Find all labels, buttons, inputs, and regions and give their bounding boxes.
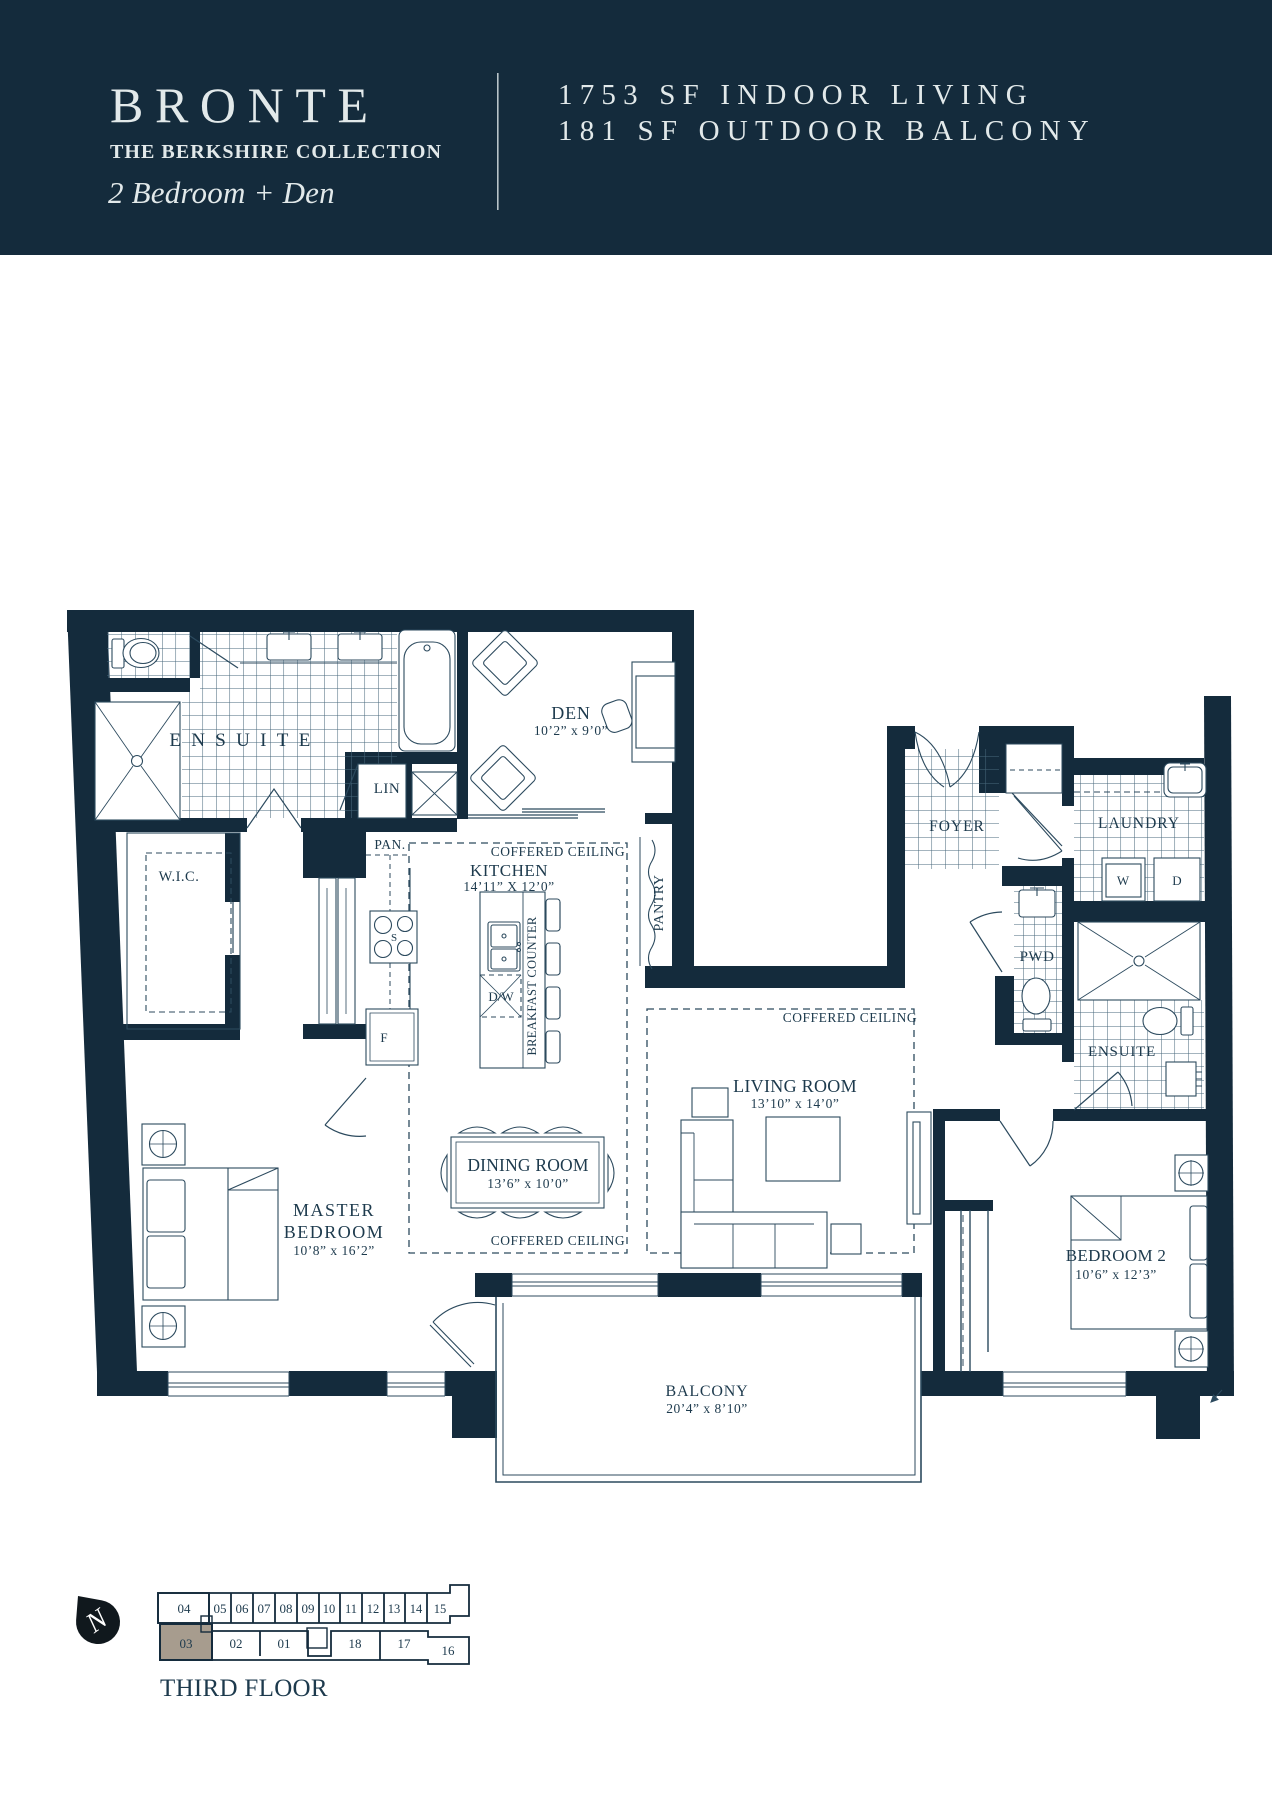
- svg-text:BALCONY: BALCONY: [666, 1383, 749, 1400]
- svg-text:16: 16: [442, 1643, 456, 1658]
- svg-text:S: S: [391, 932, 397, 944]
- svg-text:1753 SF INDOOR LIVING: 1753 SF INDOOR LIVING: [558, 79, 1034, 111]
- svg-text:D/W: D/W: [488, 989, 514, 1004]
- svg-text:10’8” x 16’2”: 10’8” x 16’2”: [293, 1243, 374, 1258]
- svg-text:BEDROOM 2: BEDROOM 2: [1066, 1246, 1166, 1265]
- svg-text:15: 15: [434, 1602, 447, 1616]
- svg-text:LIN: LIN: [374, 781, 401, 797]
- svg-text:DINING ROOM: DINING ROOM: [467, 1155, 589, 1175]
- svg-text:10: 10: [323, 1602, 336, 1616]
- svg-text:02: 02: [230, 1636, 243, 1651]
- svg-text:04: 04: [178, 1601, 192, 1616]
- svg-text:09: 09: [302, 1601, 315, 1616]
- svg-text:W.I.C.: W.I.C.: [159, 869, 200, 885]
- svg-text:2 Bedroom + Den: 2 Bedroom + Den: [108, 175, 335, 210]
- svg-text:FOYER: FOYER: [929, 818, 985, 835]
- svg-text:PAN.: PAN.: [374, 837, 405, 852]
- svg-text:13’6” x 10’0”: 13’6” x 10’0”: [487, 1176, 568, 1191]
- svg-text:10’6” x 12’3”: 10’6” x 12’3”: [1075, 1267, 1156, 1282]
- svg-text:COFFERED CEILING: COFFERED CEILING: [491, 1233, 625, 1248]
- svg-text:01: 01: [278, 1636, 291, 1651]
- svg-text:13: 13: [388, 1602, 401, 1616]
- svg-text:W: W: [1117, 873, 1130, 888]
- svg-text:20’4” x 8’10”: 20’4” x 8’10”: [666, 1401, 747, 1416]
- svg-text:18: 18: [349, 1636, 362, 1651]
- svg-text:THIRD FLOOR: THIRD FLOOR: [160, 1675, 328, 1702]
- svg-text:14’11” X 12’0”: 14’11” X 12’0”: [463, 879, 554, 894]
- svg-text:DEN: DEN: [551, 703, 590, 723]
- svg-text:06: 06: [236, 1601, 250, 1616]
- svg-text:LIVING ROOM: LIVING ROOM: [733, 1076, 857, 1096]
- svg-text:COFFERED CEILING: COFFERED CEILING: [491, 844, 625, 859]
- svg-text:181 SF OUTDOOR BALCONY: 181 SF OUTDOOR BALCONY: [558, 115, 1096, 147]
- svg-text:BEDROOM: BEDROOM: [284, 1222, 385, 1242]
- svg-text:PANTRY: PANTRY: [652, 875, 667, 932]
- svg-text:THE BERKSHIRE COLLECTION: THE BERKSHIRE COLLECTION: [110, 141, 442, 163]
- svg-text:03: 03: [180, 1636, 193, 1651]
- svg-text:BREAKFAST COUNTER: BREAKFAST COUNTER: [525, 916, 539, 1055]
- svg-text:12: 12: [367, 1602, 380, 1616]
- svg-text:13’10” x 14’0”: 13’10” x 14’0”: [751, 1096, 840, 1111]
- svg-text:ENSUITE: ENSUITE: [1088, 1044, 1156, 1060]
- svg-text:MASTER: MASTER: [293, 1200, 375, 1220]
- svg-text:LAUNDRY: LAUNDRY: [1098, 815, 1180, 832]
- svg-text:17: 17: [398, 1636, 412, 1651]
- svg-text:05: 05: [214, 1601, 227, 1616]
- svg-text:D: D: [1172, 873, 1181, 888]
- svg-text:KITCHEN: KITCHEN: [470, 861, 548, 880]
- svg-text:PWD: PWD: [1020, 949, 1055, 965]
- svg-text:14: 14: [410, 1602, 423, 1616]
- svg-text:F: F: [380, 1030, 387, 1045]
- svg-text:BRONTE: BRONTE: [110, 77, 380, 133]
- svg-text:07: 07: [258, 1601, 272, 1616]
- svg-text:ENSUITE: ENSUITE: [169, 730, 320, 751]
- svg-text:10’2” x 9’0”: 10’2” x 9’0”: [534, 723, 608, 738]
- svg-text:11: 11: [345, 1602, 357, 1616]
- svg-text:COFFERED CEILING: COFFERED CEILING: [783, 1010, 917, 1025]
- svg-text:08: 08: [280, 1601, 293, 1616]
